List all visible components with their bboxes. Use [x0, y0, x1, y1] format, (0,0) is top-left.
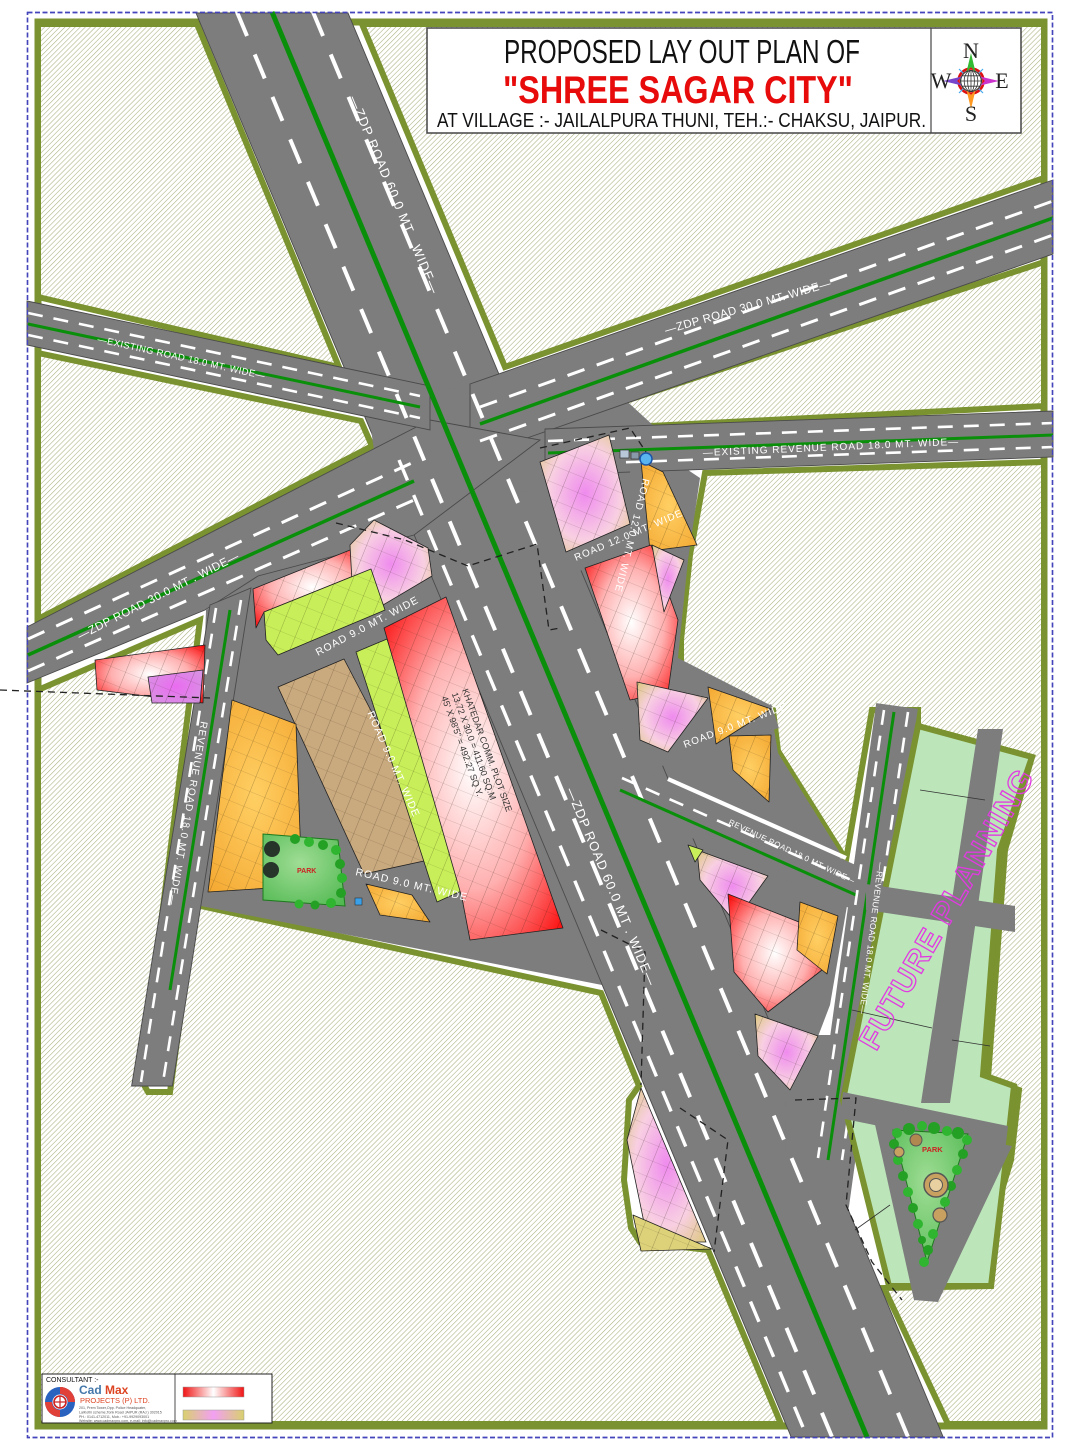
svg-text:S: S [965, 101, 977, 126]
svg-text:LalKothi scheme,Tonk Road JAIP: LalKothi scheme,Tonk Road JAIPUR (RAJ.) … [79, 1410, 162, 1414]
svg-text:PARK: PARK [297, 868, 316, 875]
svg-text:Website: www.cadmaxpro.com, e-: Website: www.cadmaxpro.com, e-mail: info… [79, 1419, 177, 1423]
svg-text:W: W [931, 68, 952, 93]
svg-text:E: E [995, 68, 1008, 93]
svg-text:PARK: PARK [922, 1145, 943, 1154]
svg-text:AT VILLAGE :- JAILALPURA THUNI: AT VILLAGE :- JAILALPURA THUNI, TEH.:- C… [437, 109, 926, 132]
svg-text:PROPOSED LAY OUT PLAN OF: PROPOSED LAY OUT PLAN OF [504, 33, 860, 70]
svg-text:PROJECTS (P) LTD.: PROJECTS (P) LTD. [80, 1396, 150, 1405]
svg-text:201, Prem Tower,Opp. Police He: 201, Prem Tower,Opp. Police Headquater, [79, 1406, 146, 1410]
svg-text:PH.: 0141-4712011, Mob.: +91-9: PH.: 0141-4712011, Mob.: +91-9929093001 [79, 1415, 149, 1419]
svg-text:Cad Max: Cad Max [79, 1383, 129, 1397]
svg-text:"SHREE SAGAR CITY": "SHREE SAGAR CITY" [503, 69, 853, 112]
svg-text:N: N [963, 38, 979, 63]
